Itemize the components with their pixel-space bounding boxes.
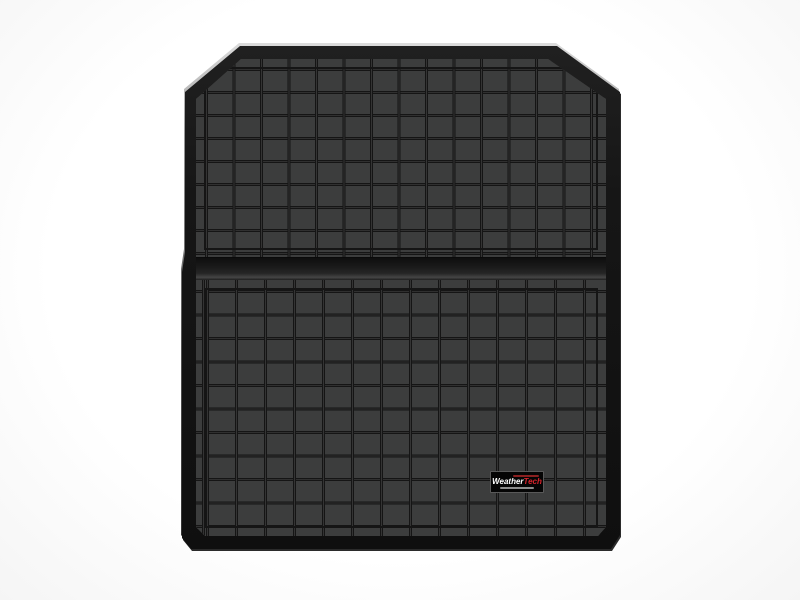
weathertech-logo-badge: WeatherTech xyxy=(490,471,544,493)
perimeter-groove-top xyxy=(204,67,598,250)
brand-wordmark: WeatherTech xyxy=(492,478,542,486)
tread-pattern-bottom-section: WeatherTech xyxy=(196,280,606,536)
brand-wordmark-weather: Weather xyxy=(492,477,523,486)
mat-inner-field: WeatherTech xyxy=(196,59,606,536)
tread-pattern-top-section xyxy=(196,59,606,258)
product-photo: WeatherTech xyxy=(0,0,800,600)
badge-micro-text-bottom xyxy=(500,487,534,489)
mat-fold-ridge xyxy=(196,258,606,280)
cargo-liner-mat: WeatherTech xyxy=(182,46,620,549)
brand-wordmark-tech: Tech xyxy=(524,477,542,486)
